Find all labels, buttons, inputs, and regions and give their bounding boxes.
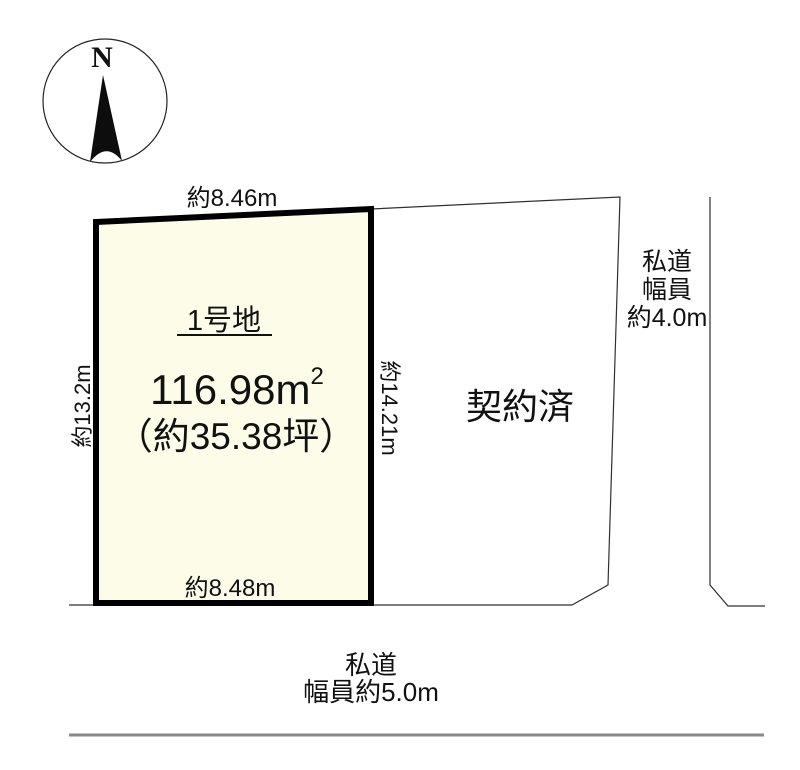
lot-area-m2-value: 116.98m <box>150 366 310 413</box>
dimension-top: 約8.46m <box>187 185 278 212</box>
adjacent-lot-status: 契約済 <box>466 386 574 427</box>
compass: N <box>43 39 167 163</box>
dimension-bottom: 約8.48m <box>185 575 276 602</box>
site-plan-svg: N 約8.46m 約8.48m 約13.2m 約14.21m 1号地 116.9… <box>0 0 800 770</box>
lot-area-m2: 116.98m2 <box>150 363 324 413</box>
bottom-road-label-line1: 私道 <box>345 650 397 680</box>
north-label: N <box>91 41 113 74</box>
right-road-edge <box>710 197 765 606</box>
lot-area-m2-sup: 2 <box>310 363 323 390</box>
site-plan-diagram: N 約8.46m 約8.48m 約13.2m 約14.21m 1号地 116.9… <box>0 0 800 770</box>
dimension-left: 約13.2m <box>70 364 95 447</box>
right-road-label-line2: 幅員 <box>642 276 692 304</box>
bottom-road-label-line2: 幅員約5.0m <box>303 677 439 707</box>
lot-area-tsubo: （約35.38坪） <box>116 416 357 457</box>
lot-name: 1号地 <box>187 304 261 337</box>
right-road-label-line1: 私道 <box>642 248 692 276</box>
dimension-right: 約14.21m <box>377 360 402 455</box>
right-road-label-line3: 約4.0m <box>627 304 708 332</box>
